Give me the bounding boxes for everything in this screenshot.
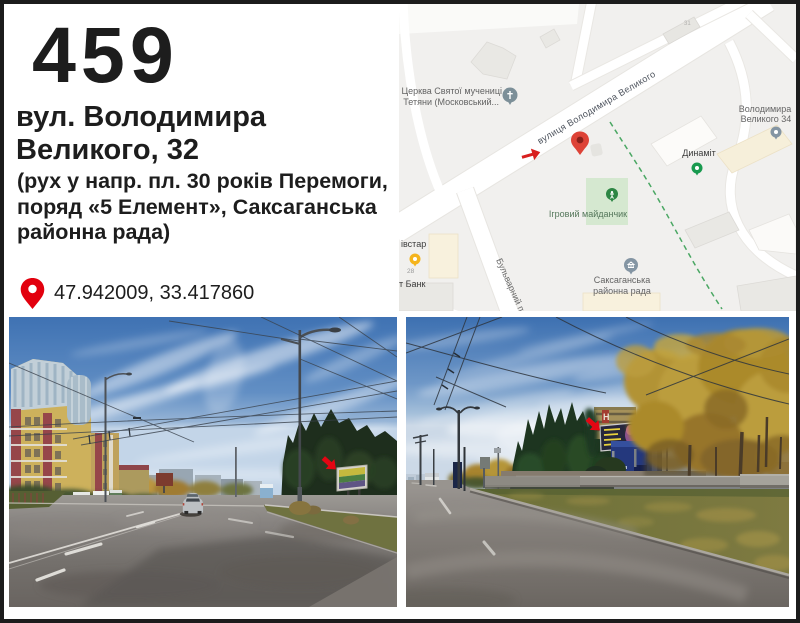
svg-text:Динаміт: Динаміт	[682, 148, 715, 158]
svg-text:районна рада: районна рада	[593, 286, 651, 296]
svg-text:28: 28	[407, 268, 415, 275]
svg-text:Ігровий майданчик: Ігровий майданчик	[549, 209, 627, 219]
svg-text:Володимира: Володимира	[739, 104, 791, 114]
svg-text:Великого 34: Великого 34	[741, 114, 792, 124]
svg-text:Церква Святої мучениці: Церква Святої мучениці	[401, 86, 502, 96]
svg-text:Тетяни (Московський...: Тетяни (Московський...	[403, 97, 499, 107]
svg-text:31: 31	[684, 21, 691, 27]
svg-text:H: H	[603, 412, 610, 422]
svg-text:івстар: івстар	[401, 239, 426, 249]
svg-text:т Банк: т Банк	[399, 279, 426, 289]
svg-text:Саксаганська: Саксаганська	[594, 275, 651, 285]
